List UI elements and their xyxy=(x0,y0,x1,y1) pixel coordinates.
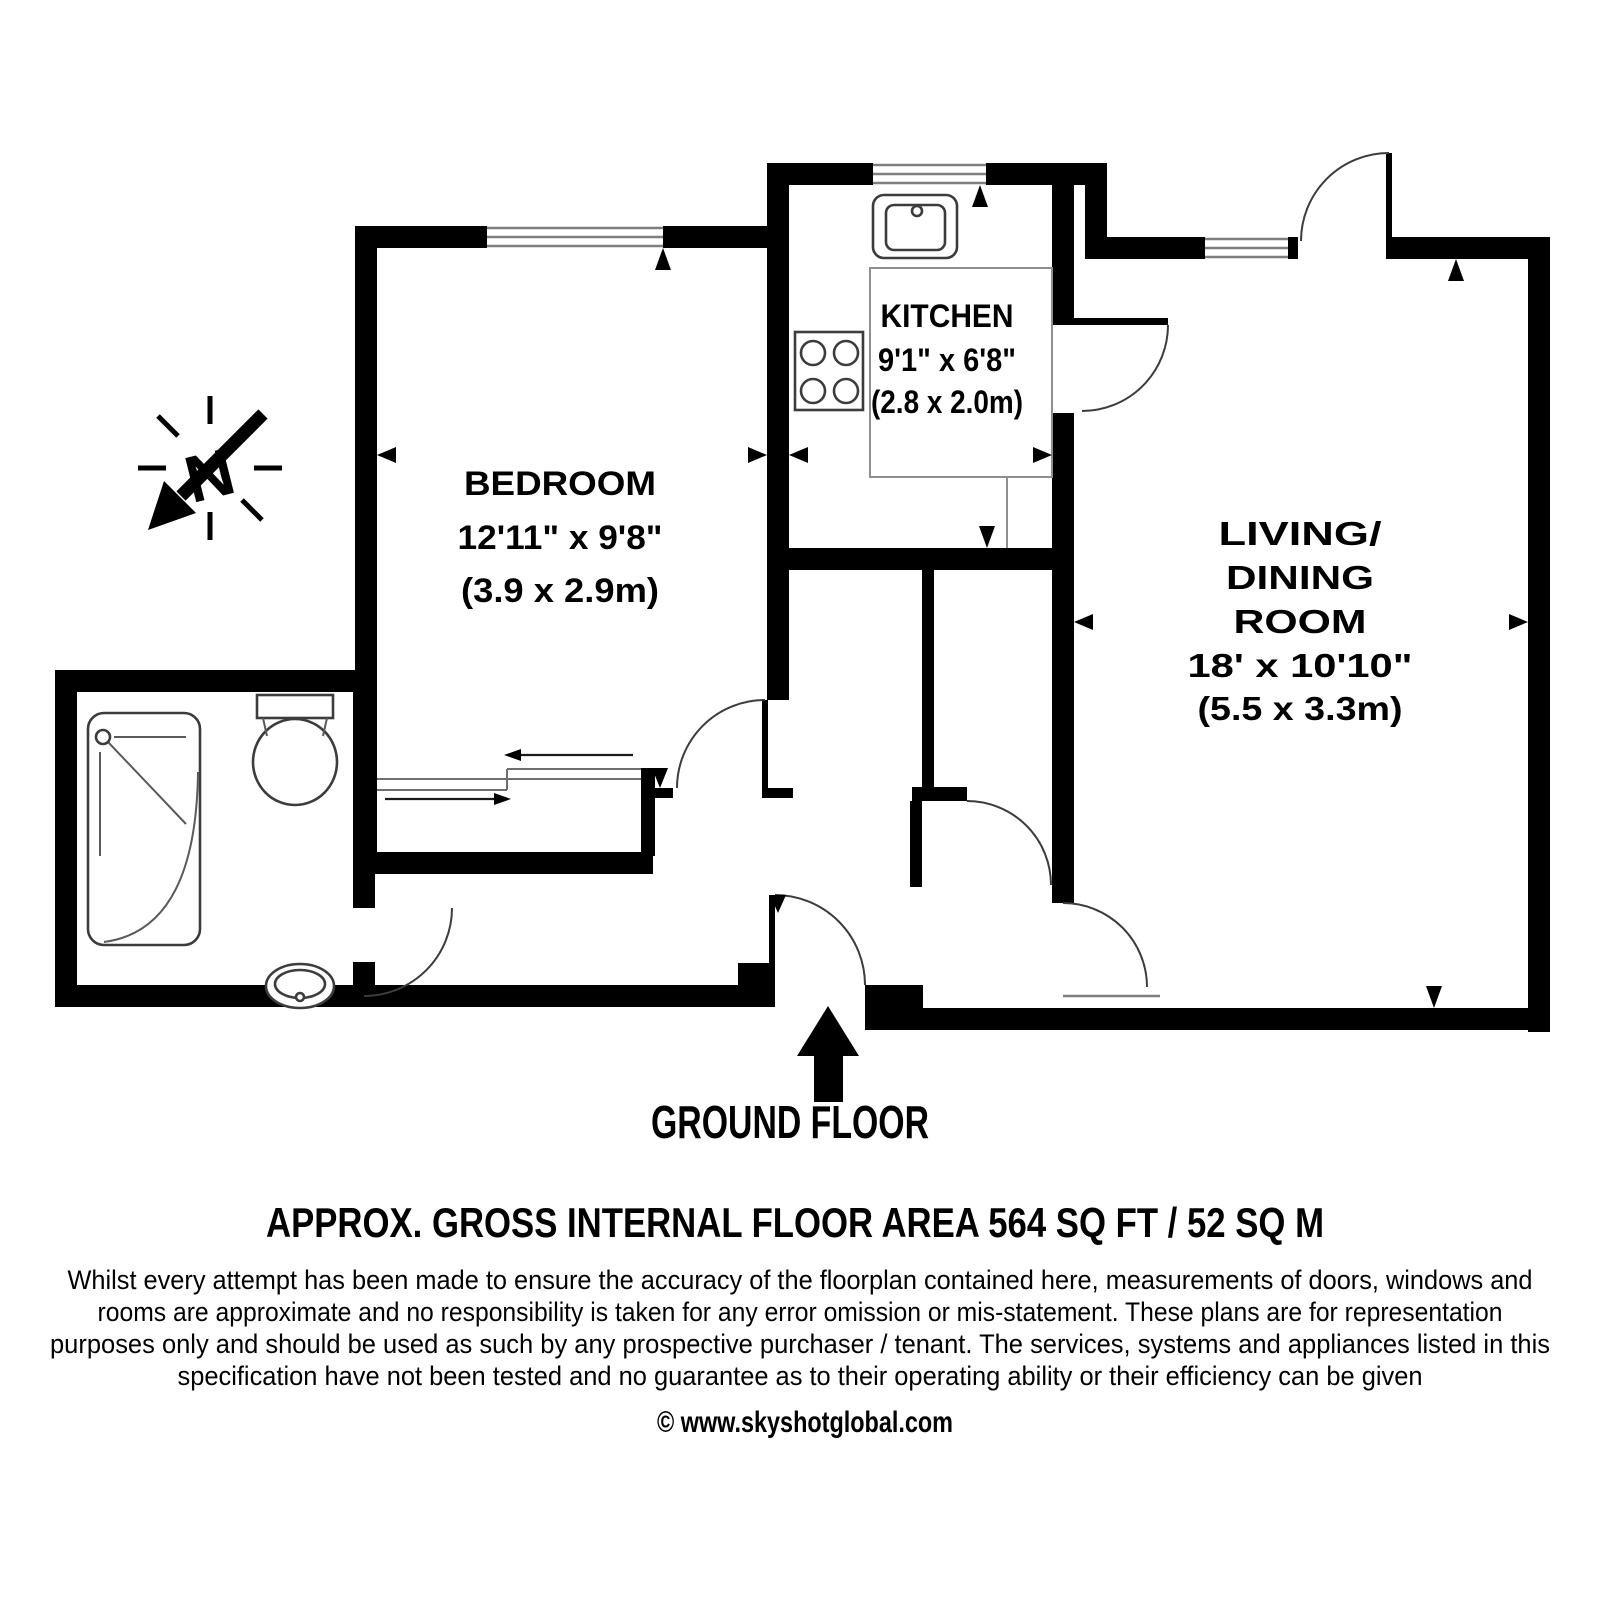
bedroom-dimensions-imperial: 12'11" x 9'8" xyxy=(458,519,663,557)
kitchen-door xyxy=(1063,318,1168,411)
wardrobe-icon xyxy=(377,749,641,805)
front-door xyxy=(769,895,865,985)
sink-icon xyxy=(873,195,957,258)
living-label-3: ROOM xyxy=(1234,603,1367,640)
bedroom-label: BEDROOM xyxy=(464,465,656,503)
living-patio-door xyxy=(1301,153,1392,241)
room-labels: BEDROOM 12'11" x 9'8" (3.9 x 2.9m) KITCH… xyxy=(458,298,1413,727)
area-note: APPROX. GROSS INTERNAL FLOOR AREA 564 SQ… xyxy=(266,1199,1324,1246)
entrance-arrow-icon xyxy=(797,1006,859,1102)
disclaimer-line-3: purposes only and should be used as such… xyxy=(50,1329,1550,1359)
bathroom-fixtures xyxy=(88,695,337,1008)
living-dimensions-metric: (5.5 x 3.3m) xyxy=(1198,690,1403,727)
north-arrow: N xyxy=(138,396,282,540)
disclaimer-line-4: specification have not been tested and n… xyxy=(178,1361,1423,1391)
sliding-door-arrow-left xyxy=(504,749,633,761)
living-label-2: DINING xyxy=(1226,559,1374,596)
kitchen-dimensions-metric: (2.8 x 2.0m) xyxy=(871,384,1023,420)
hob-icon xyxy=(795,332,863,410)
disclaimer-line-2: rooms are approximate and no responsibil… xyxy=(98,1297,1503,1327)
shower-icon xyxy=(88,713,200,945)
floorplan-page: N BEDROOM 12'11" x 9'8" (3.9 x 2.9m) KIT… xyxy=(0,0,1600,1600)
bedroom-dimensions-metric: (3.9 x 2.9m) xyxy=(461,572,659,610)
hall-door-arc xyxy=(967,801,1051,885)
toilet-icon xyxy=(253,695,337,805)
living-dimensions-imperial: 18' x 10'10" xyxy=(1188,647,1413,684)
bathroom-door-arc xyxy=(364,908,452,996)
walls xyxy=(55,163,1550,1032)
floor-title: GROUND FLOOR xyxy=(651,1096,929,1148)
living-door-opening xyxy=(1298,237,1386,259)
living-window xyxy=(1205,237,1288,259)
disclaimer-line-1: Whilst every attempt has been made to en… xyxy=(68,1265,1533,1295)
copyright: © www.skyshotglobal.com xyxy=(657,1406,953,1439)
bedroom-window xyxy=(487,226,663,248)
bedroom-door xyxy=(677,700,768,788)
kitchen-window xyxy=(873,163,986,185)
footer-text: GROUND FLOOR APPROX. GROSS INTERNAL FLOO… xyxy=(50,1096,1550,1439)
basin-icon xyxy=(266,964,334,1008)
kitchen-label: KITCHEN xyxy=(881,298,1014,334)
living-label-1: LIVING/ xyxy=(1219,515,1382,552)
floor-plan-svg: N BEDROOM 12'11" x 9'8" (3.9 x 2.9m) KIT… xyxy=(0,0,1600,1600)
living-room-door xyxy=(1063,903,1160,996)
kitchen-dimensions-imperial: 9'1" x 6'8" xyxy=(878,342,1016,378)
sliding-door-arrow-right xyxy=(385,793,511,805)
